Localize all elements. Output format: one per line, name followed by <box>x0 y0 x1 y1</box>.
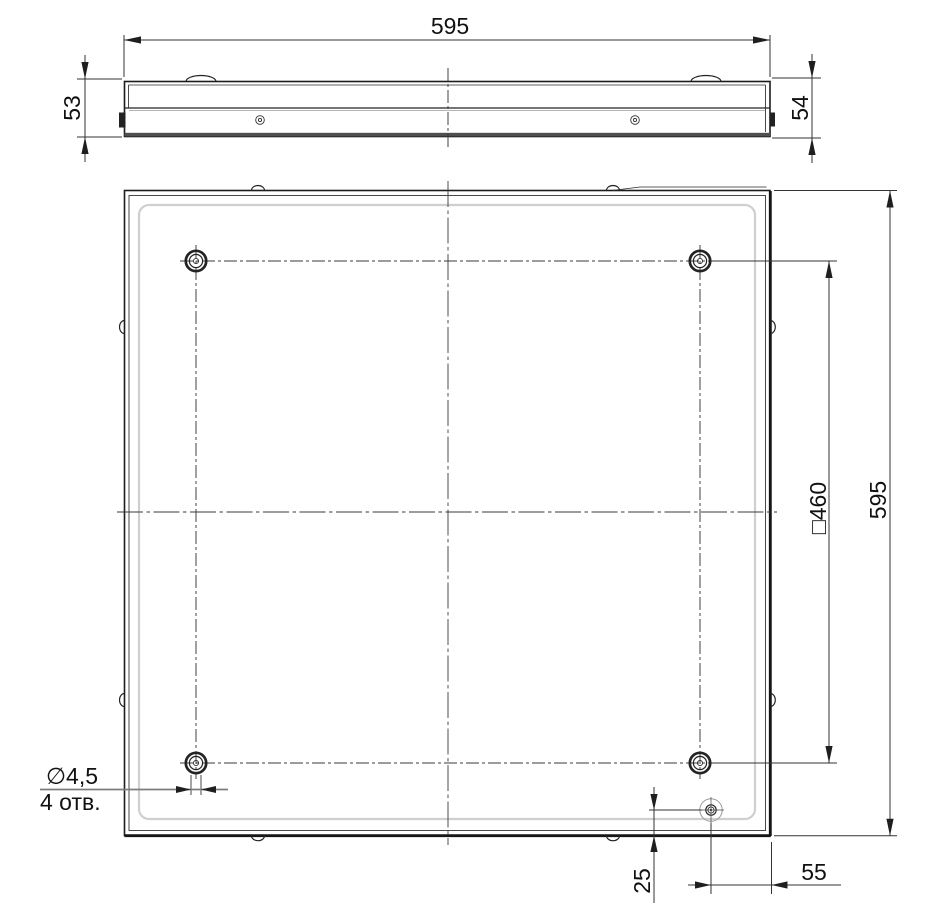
side-view-body <box>125 82 771 137</box>
latch-bump <box>186 76 216 82</box>
arrowhead <box>81 137 88 154</box>
dim-cable-hole-right-offset-label: 55 <box>801 859 827 885</box>
arrowhead <box>808 138 815 155</box>
arrowhead <box>825 261 832 278</box>
side-clip-right <box>770 113 776 127</box>
screw-center <box>633 118 636 121</box>
dimension-cable-hole-right-offset: 55 <box>688 823 841 894</box>
dim-cable-hole-bottom-offset-label: 25 <box>629 868 655 894</box>
arrowhead <box>201 786 216 793</box>
side-view-bottom-band <box>125 133 771 137</box>
dimension-overall-height: 595 <box>774 191 897 836</box>
dimension-cable-hole-bottom-offset: 25 <box>629 787 702 903</box>
dim-overall-width-label: 595 <box>431 13 469 39</box>
arrowhead <box>825 746 832 763</box>
plan-inner-outline <box>129 196 766 831</box>
arrowhead <box>886 819 893 836</box>
dim-depth-right-label: 54 <box>787 95 813 121</box>
screw-center <box>258 118 261 121</box>
arrowhead <box>695 881 711 888</box>
arrowhead <box>650 836 657 852</box>
arrowhead <box>886 191 893 208</box>
latch-bump <box>691 76 721 82</box>
arrowhead <box>81 62 88 79</box>
hole-callout-diameter-label: ∅4,5 <box>46 763 98 789</box>
hole-callout-count-label: 4 отв. <box>40 789 101 815</box>
side-view <box>119 68 775 147</box>
dim-mounting-square-label: □460 <box>805 482 831 534</box>
arrowhead <box>124 36 141 43</box>
screw-head <box>631 116 640 125</box>
hole-diameter-callout: ∅4,5 4 отв. <box>40 763 228 815</box>
dim-depth-left-label: 53 <box>59 95 85 121</box>
arrowhead <box>753 36 770 43</box>
side-clip-left <box>119 113 126 128</box>
dimension-depth-right: 54 <box>772 54 821 163</box>
screw-head <box>256 116 265 125</box>
plan-view <box>117 181 777 845</box>
drawing-canvas: 595 53 54 <box>0 0 937 907</box>
arrowhead <box>176 786 191 793</box>
technical-drawing: 595 53 54 <box>0 0 937 907</box>
plan-view-body <box>125 191 771 836</box>
dimension-depth-left: 53 <box>59 55 122 162</box>
arrowhead <box>772 881 788 888</box>
arrowhead <box>650 794 657 810</box>
arrowhead <box>808 61 815 78</box>
dimension-overall-width: 595 <box>124 13 770 77</box>
dim-overall-height-label: 595 <box>865 481 891 519</box>
